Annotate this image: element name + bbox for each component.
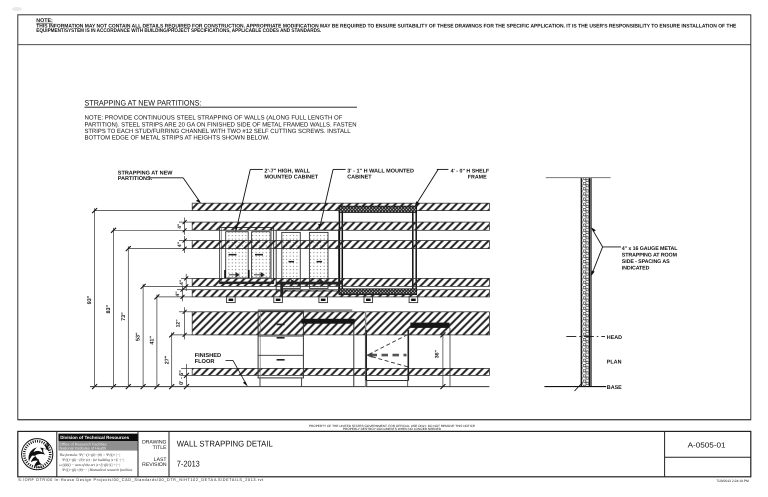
svg-text:FRAME: FRAME bbox=[468, 175, 487, 181]
svg-text:41": 41" bbox=[150, 336, 156, 345]
svg-text:REVISION: REVISION bbox=[142, 462, 167, 468]
svg-text:SIDE - SPACING AS: SIDE - SPACING AS bbox=[622, 259, 670, 265]
svg-text:FINISHED: FINISHED bbox=[195, 353, 222, 359]
svg-text:TITLE: TITLE bbox=[153, 445, 167, 451]
svg-text:4": 4" bbox=[179, 279, 185, 285]
svg-text:A-0505-01: A-0505-01 bbox=[688, 441, 726, 450]
svg-text:PARTITIONS.: PARTITIONS. bbox=[118, 176, 153, 182]
svg-text:7-2013: 7-2013 bbox=[177, 458, 200, 468]
svg-text:PROPERLY DESTROY DOCUMENTS WHE: PROPERLY DESTROY DOCUMENTS WHEN NO LONGE… bbox=[343, 427, 442, 431]
svg-text:4": 4" bbox=[177, 223, 183, 229]
svg-text:ω·(β)(ξ) − sum of the art |ε+: ω·(β)(ξ) − sum of the art |ε+ξ|·(β)·|ξ| … bbox=[59, 463, 120, 467]
svg-text:STRAPPING AT ROOM: STRAPPING AT ROOM bbox=[622, 253, 678, 259]
svg-text:4' - 0" H SHELF: 4' - 0" H SHELF bbox=[451, 168, 490, 174]
svg-text:53": 53" bbox=[136, 332, 142, 341]
svg-text:12": 12" bbox=[176, 319, 182, 328]
svg-text:MOUNTED CABINET: MOUNTED CABINET bbox=[264, 175, 318, 181]
svg-text:Division of Technical Resource: Division of Technical Resources bbox=[60, 435, 129, 440]
svg-text:27": 27" bbox=[164, 355, 170, 364]
svg-text:National Institutes of Health: National Institutes of Health bbox=[60, 447, 106, 451]
svg-text:83": 83" bbox=[106, 304, 112, 313]
svg-text:STRAPPING AT NEW PARTITIONS:: STRAPPING AT NEW PARTITIONS: bbox=[85, 98, 202, 107]
svg-text:3' - 1" H WALL MOUNTED: 3' - 1" H WALL MOUNTED bbox=[347, 168, 414, 174]
svg-text:WALL STRAPPING DETAIL: WALL STRAPPING DETAIL bbox=[177, 439, 273, 449]
svg-text:S:\ORF DTR\00 In-House Design: S:\ORF DTR\00 In-House Design Projects\0… bbox=[18, 478, 264, 482]
svg-text:4": 4" bbox=[175, 291, 181, 297]
svg-text:CABINET: CABINET bbox=[347, 175, 372, 181]
svg-text:7/29/2013 2:24:19 PM: 7/29/2013 2:24:19 PM bbox=[716, 479, 749, 483]
svg-text:HEAD: HEAD bbox=[607, 335, 622, 341]
svg-text:0' - 5": 0' - 5" bbox=[179, 370, 185, 385]
svg-text:INDICATED: INDICATED bbox=[622, 266, 650, 272]
svg-text:Ψ·(ξ)−(β)+(θ)−−| Biomedical re: Ψ·(ξ)−(β)+(θ)−−| Biomedical research fac… bbox=[62, 468, 133, 472]
svg-text:BASE: BASE bbox=[607, 385, 622, 391]
svg-text:73": 73" bbox=[121, 312, 127, 321]
svg-text:93": 93" bbox=[87, 295, 93, 304]
svg-text:2'-7" HIGH, WALL: 2'-7" HIGH, WALL bbox=[264, 168, 310, 174]
svg-text:PLAN: PLAN bbox=[607, 359, 622, 365]
svg-text:EQUIPMENT/SYSTEM IS IN ACCORDA: EQUIPMENT/SYSTEM IS IN ACCORDANCE WITH B… bbox=[36, 28, 321, 34]
svg-text:36": 36" bbox=[434, 350, 440, 359]
svg-text:Ψ·(ξ)−(β) −(θ)+(ε) : for build: Ψ·(ξ)−(β) −(θ)+(ε) : for building |ε+ξ| … bbox=[62, 458, 124, 462]
svg-text:4" x 16 GAUGE METAL: 4" x 16 GAUGE METAL bbox=[622, 246, 678, 252]
svg-text:FLOOR: FLOOR bbox=[195, 359, 215, 365]
svg-text:Office of Research Facilities: Office of Research Facilities bbox=[60, 442, 107, 446]
svg-text:4": 4" bbox=[177, 241, 183, 247]
svg-text:The formula: Ψ·(−ξ)+(β)−(θ) =: The formula: Ψ·(−ξ)+(β)−(θ) = Ψ·(ξ)+|−| bbox=[59, 453, 120, 457]
svg-text:BOTTOM EDGE OF METAL STRIPS AT: BOTTOM EDGE OF METAL STRIPS AT HEIGHTS S… bbox=[85, 135, 270, 142]
